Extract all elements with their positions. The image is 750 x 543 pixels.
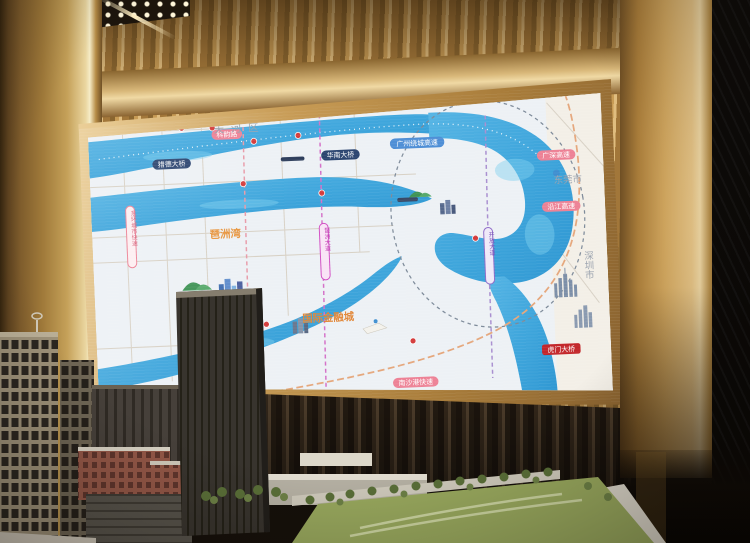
capsule-xinguang-expwy: 新光快速 — [204, 364, 243, 376]
capsule-huanan-bridge: 华南大桥 — [321, 149, 360, 161]
capsule-yanjiang-expwy: 沿江高速 — [542, 200, 581, 212]
capsule-nansha-port-expwy: 南沙港快速 — [393, 376, 439, 388]
city-label-dongguan: 东莞市 — [553, 173, 582, 186]
led-map-screen: 华南快速 科韵路 猎德大桥 华南大桥 — [87, 90, 613, 414]
capsule-guangshen-expwy: 广深高速 — [537, 149, 576, 161]
showroom-photo: 华南快速 科韵路 猎德大桥 华南大桥 — [0, 0, 750, 543]
badge-humen-bridge: 虎门大桥 — [542, 343, 581, 355]
right-gold-pillar — [620, 0, 720, 478]
led-screen-assembly: 华南快速 科韵路 猎德大桥 华南大桥 — [77, 79, 624, 427]
capsule-liede-bridge: 猎德大桥 — [152, 158, 191, 170]
dark-glass-window — [712, 0, 750, 543]
map-svg: 华南快速 科韵路 猎德大桥 华南大桥 — [87, 90, 613, 414]
city-label-shenzhen: 深圳市 — [582, 250, 595, 280]
